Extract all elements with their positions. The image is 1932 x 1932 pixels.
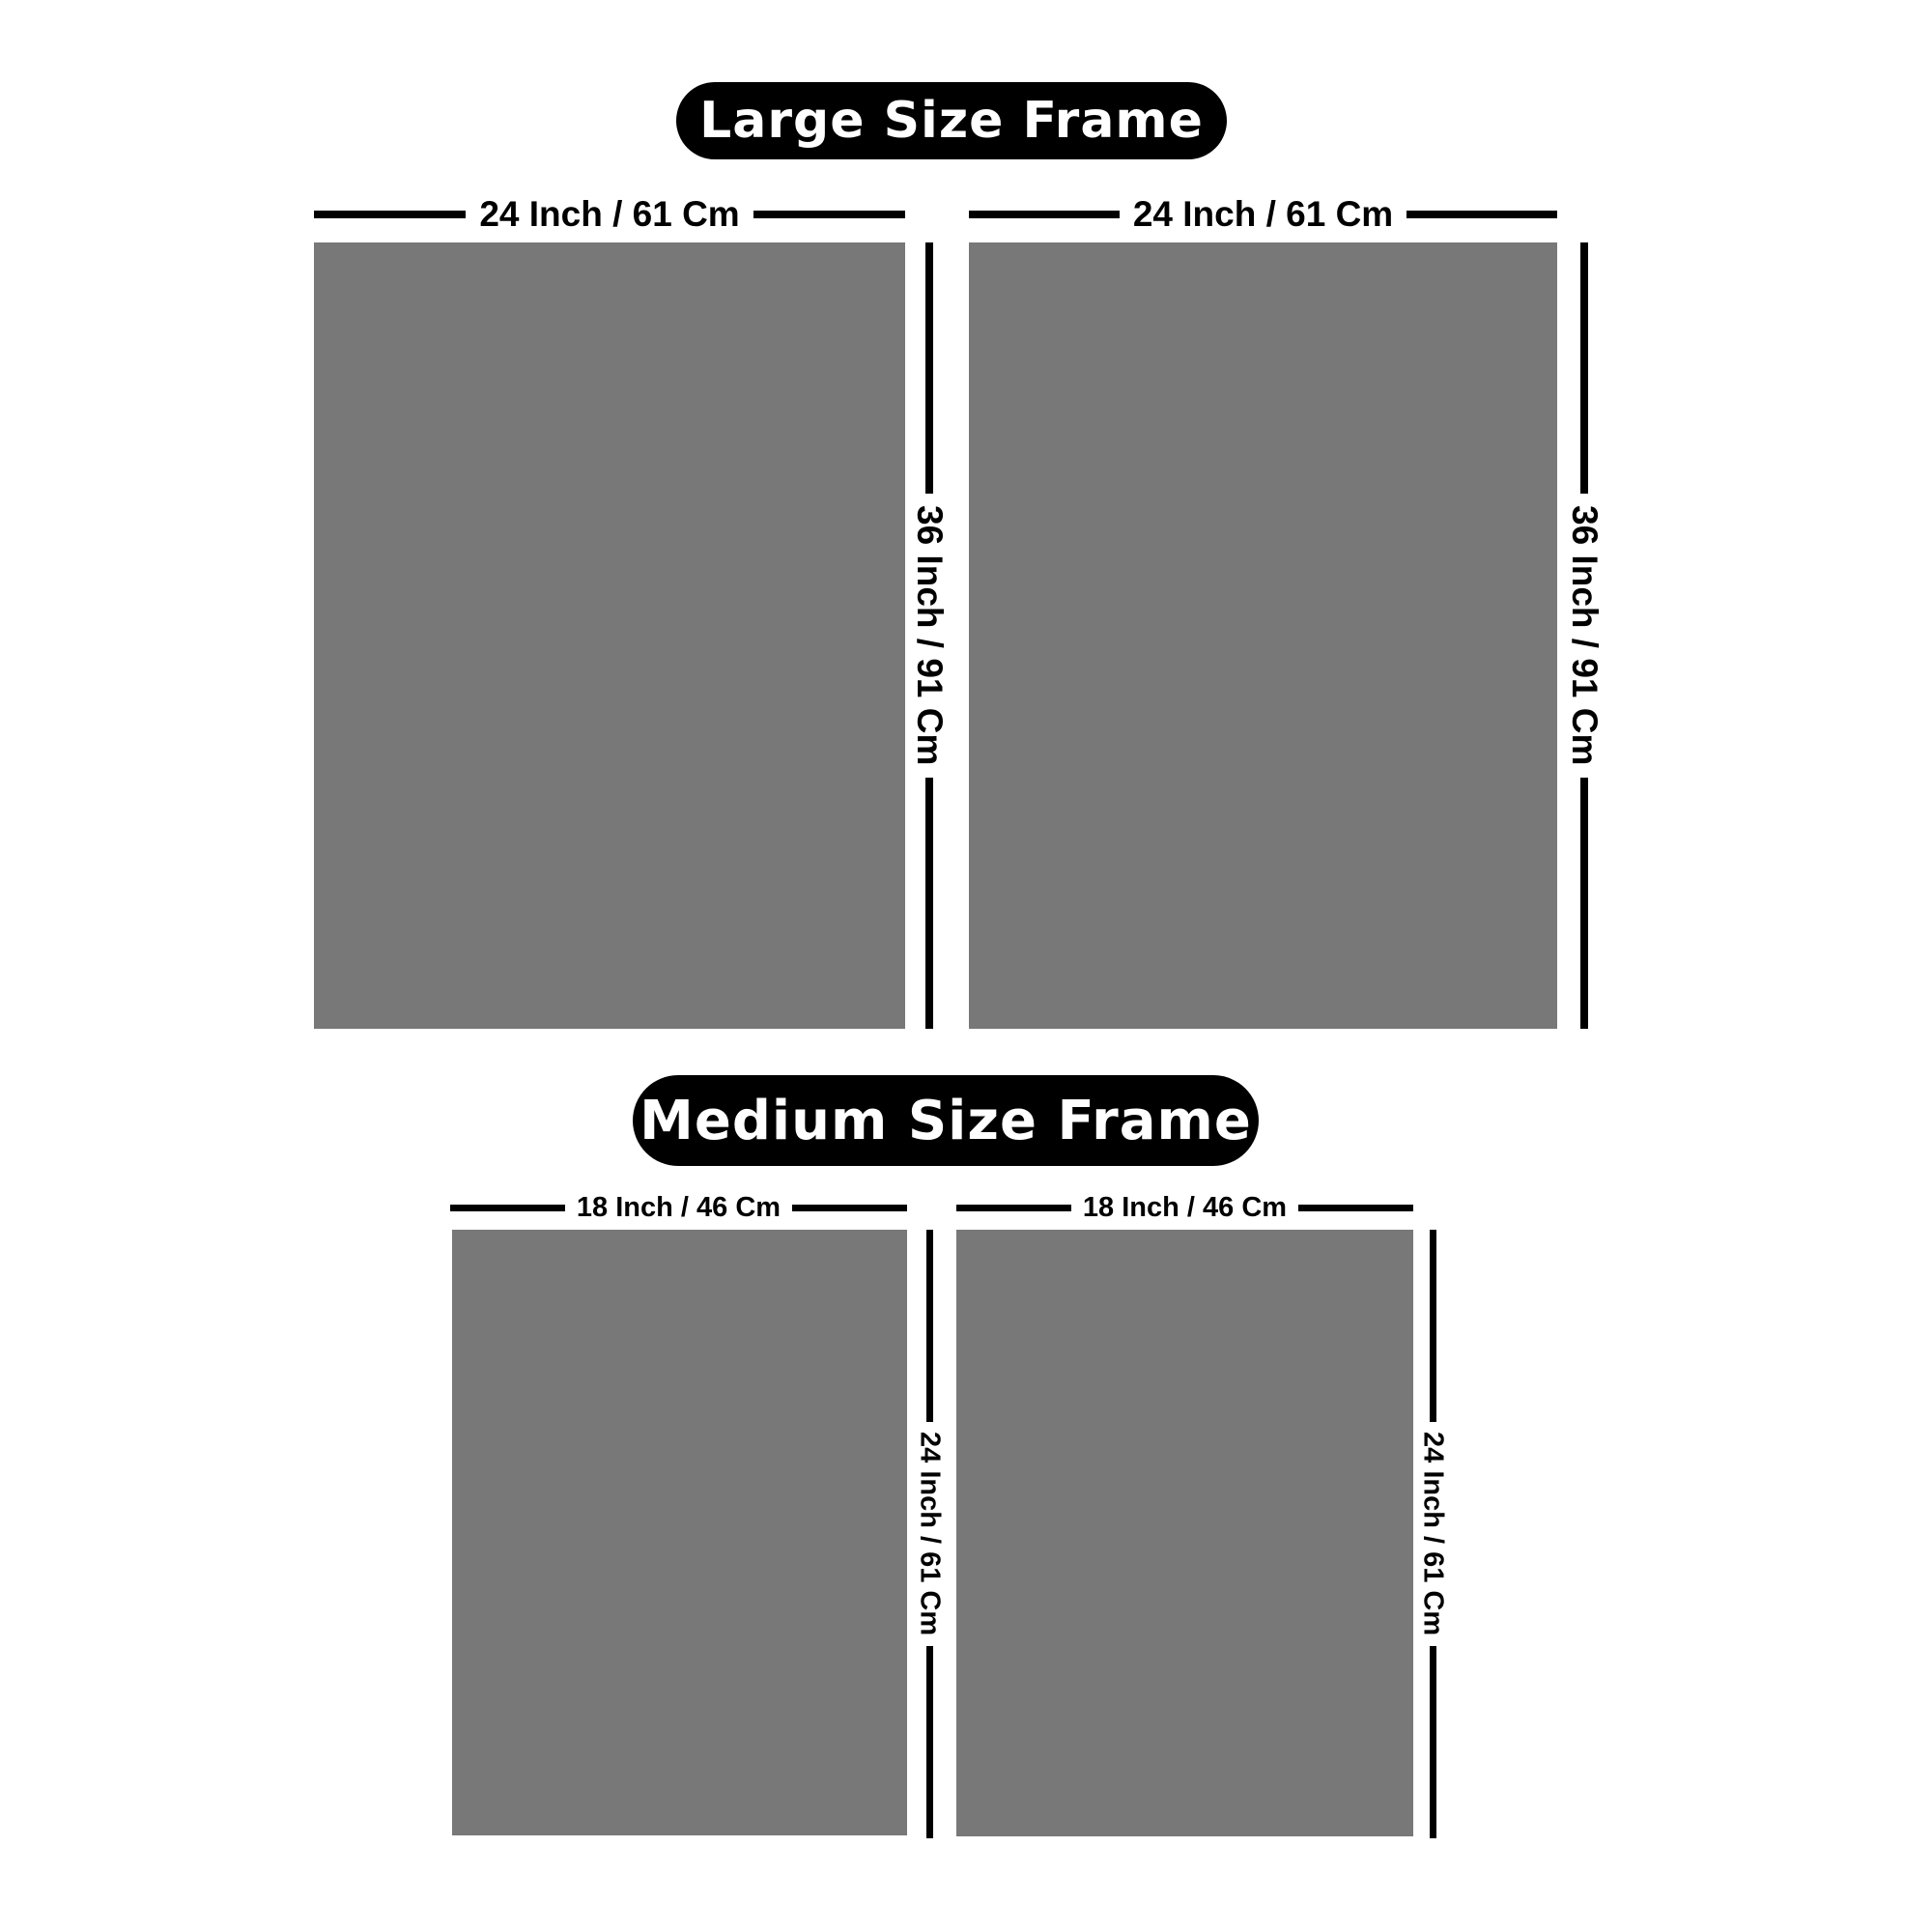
- large-frame-2-width-dimension: 24 Inch / 61 Cm: [969, 189, 1557, 240]
- large-section-title-pill: Large Size Frame: [676, 82, 1227, 159]
- dimension-line: [450, 1205, 565, 1211]
- frame-size-guide: Large Size Frame 24 Inch / 61 Cm 24 Inch…: [0, 0, 1932, 1932]
- large-frame-1-height-dimension: 36 Inch / 91 Cm: [910, 242, 949, 1029]
- dimension-line: [1580, 778, 1588, 1029]
- height-dimension-label: 36 Inch / 91 Cm: [1564, 505, 1605, 765]
- dimension-line: [926, 1230, 933, 1422]
- dimension-line: [1430, 1230, 1436, 1422]
- dimension-line: [969, 211, 1120, 218]
- medium-section-title: Medium Size Frame: [639, 1090, 1252, 1152]
- dimension-line: [925, 778, 933, 1029]
- dimension-line: [956, 1205, 1071, 1211]
- large-frame-2-rect: [969, 242, 1557, 1029]
- medium-frame-2-height-dimension: 24 Inch / 61 Cm: [1415, 1230, 1450, 1838]
- dimension-line: [926, 1646, 933, 1838]
- dimension-line: [925, 242, 933, 494]
- height-dimension-label: 24 Inch / 61 Cm: [914, 1432, 946, 1635]
- dimension-line: [1430, 1646, 1436, 1838]
- medium-frame-1-rect: [452, 1230, 907, 1835]
- width-dimension-label: 24 Inch / 61 Cm: [479, 194, 739, 235]
- medium-frame-2-rect: [956, 1230, 1413, 1836]
- height-dimension-label: 36 Inch / 91 Cm: [909, 505, 950, 765]
- large-frame-2-height-dimension: 36 Inch / 91 Cm: [1565, 242, 1604, 1029]
- medium-frame-1-height-dimension: 24 Inch / 61 Cm: [912, 1230, 947, 1838]
- large-frame-1-rect: [314, 242, 905, 1029]
- large-section-title: Large Size Frame: [699, 92, 1204, 150]
- width-dimension-label: 24 Inch / 61 Cm: [1133, 194, 1393, 235]
- dimension-line: [314, 211, 466, 218]
- medium-frame-2-width-dimension: 18 Inch / 46 Cm: [956, 1186, 1413, 1229]
- width-dimension-label: 18 Inch / 46 Cm: [1083, 1192, 1287, 1224]
- dimension-line: [792, 1205, 907, 1211]
- medium-section-title-pill: Medium Size Frame: [633, 1075, 1259, 1166]
- dimension-line: [1580, 242, 1588, 494]
- width-dimension-label: 18 Inch / 46 Cm: [577, 1192, 781, 1224]
- dimension-line: [1298, 1205, 1413, 1211]
- height-dimension-label: 24 Inch / 61 Cm: [1417, 1432, 1449, 1635]
- dimension-line: [1406, 211, 1557, 218]
- medium-frame-1-width-dimension: 18 Inch / 46 Cm: [450, 1186, 907, 1229]
- dimension-line: [753, 211, 905, 218]
- large-frame-1-width-dimension: 24 Inch / 61 Cm: [314, 189, 905, 240]
